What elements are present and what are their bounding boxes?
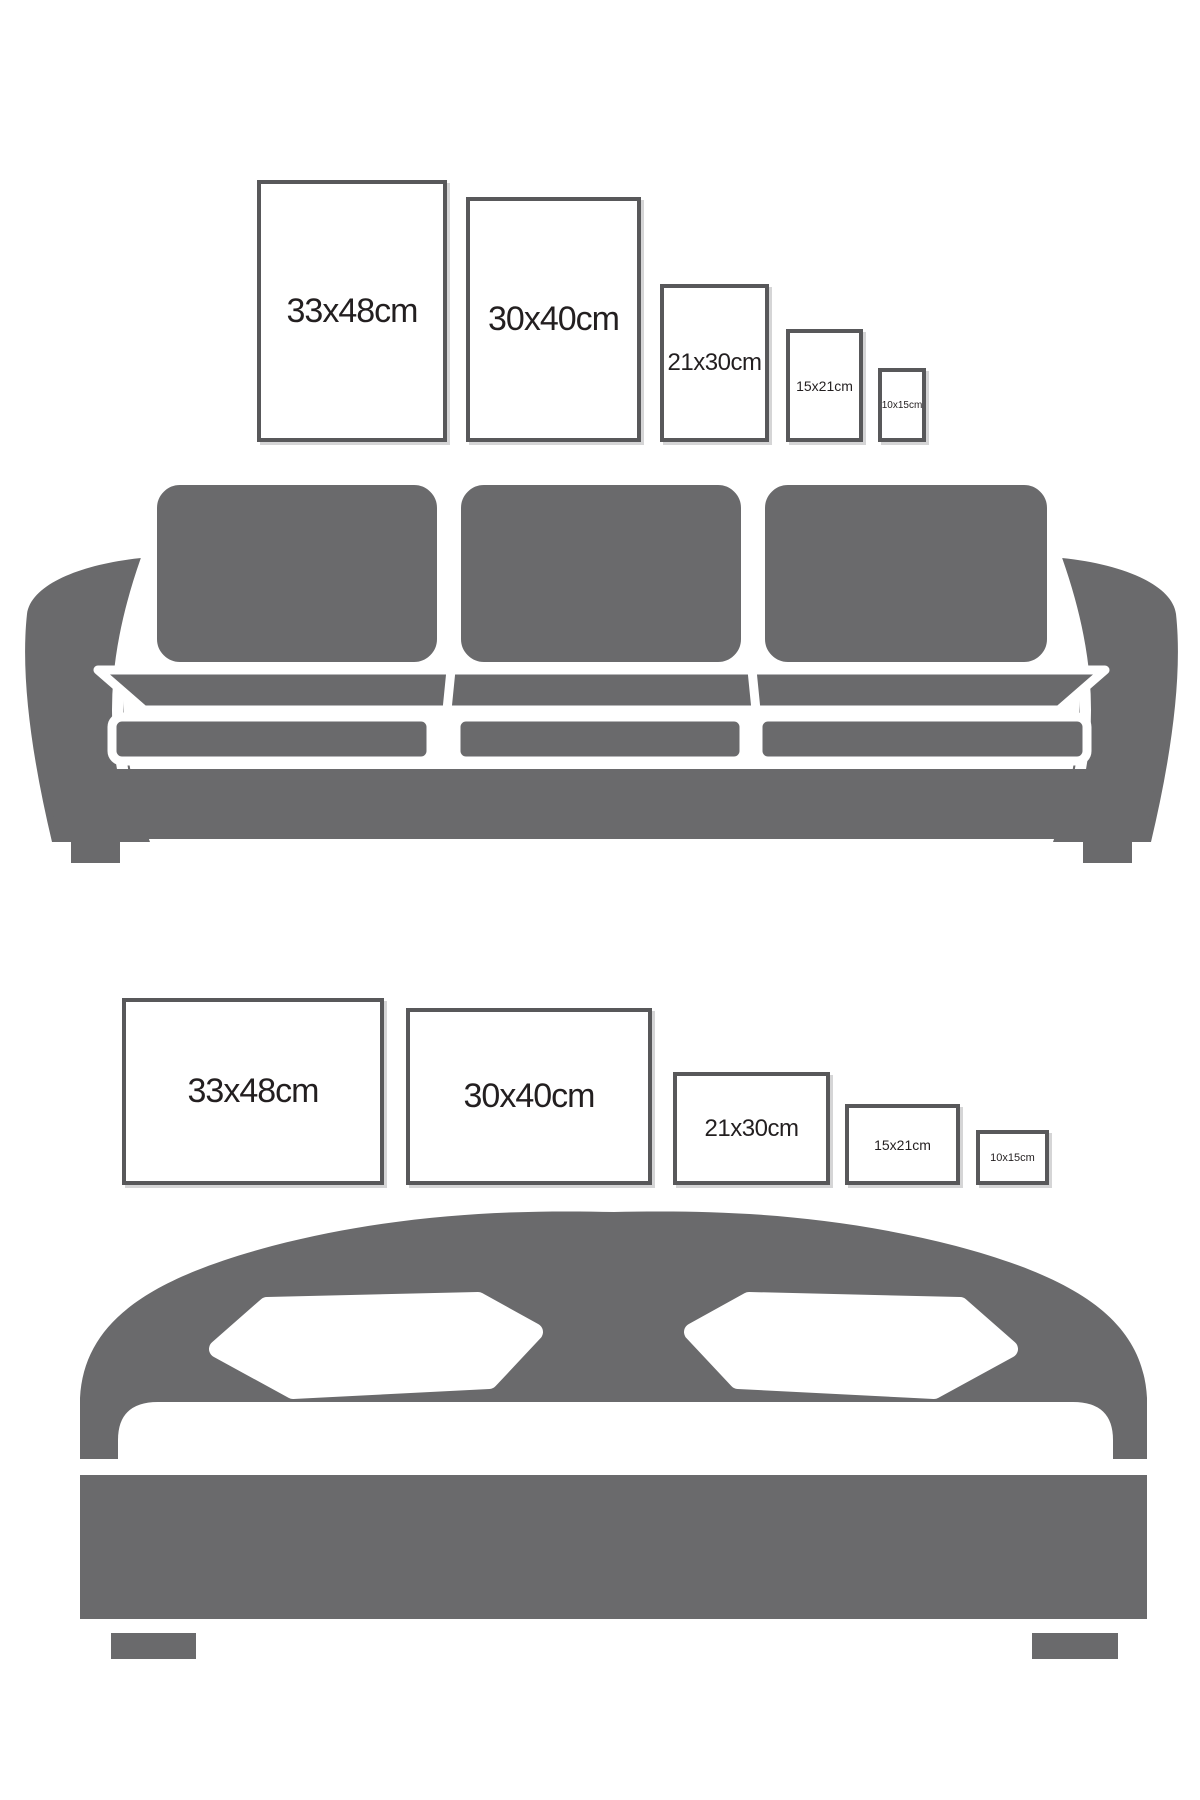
sofa-seat-deck [98,670,1105,710]
size-label: 21x30cm [668,349,762,377]
size-frame-10x15-portrait: 10x15cm [878,368,926,442]
size-frame-15x21-landscape: 15x21cm [845,1104,960,1185]
size-label: 30x40cm [488,300,619,339]
size-frame-21x30-landscape: 21x30cm [673,1072,830,1185]
size-frame-33x48-landscape: 33x48cm [122,998,384,1185]
sofa-back-cushion [760,480,1052,667]
sofa-base [46,769,1157,839]
bed-foot-left [111,1633,196,1659]
size-label: 10x15cm [882,400,923,411]
bed-pillow-right [693,1301,1009,1390]
size-frame-30x40-portrait: 30x40cm [466,197,641,442]
size-frame-33x48-portrait: 33x48cm [257,180,447,442]
sofa-seat-cushion [758,717,1087,761]
size-label: 33x48cm [188,1072,319,1111]
sofa-icon [25,480,1178,863]
sofa-back-cushion [152,480,442,667]
bed-foot-right [1032,1633,1118,1659]
size-label: 33x48cm [287,292,418,331]
bed-pillow-left [218,1301,534,1390]
size-label: 30x40cm [464,1077,595,1116]
bed-mattress [118,1402,1113,1459]
bed-base [80,1475,1147,1619]
size-label: 10x15cm [990,1152,1035,1164]
sofa-deck-divider-right [752,670,756,710]
bed-icon [80,1211,1147,1659]
size-frame-10x15-landscape: 10x15cm [976,1130,1049,1185]
size-label: 15x21cm [796,378,853,394]
size-frame-15x21-portrait: 15x21cm [786,329,863,442]
poster-size-guide: 33x48cm 30x40cm 21x30cm 15x21cm 10x15cm … [0,0,1200,1800]
sofa-seat-cushion [456,717,744,761]
size-label: 21x30cm [705,1115,799,1143]
sofa-foot-right [1083,839,1132,863]
sofa-deck-divider-left [447,670,451,710]
size-frame-30x40-landscape: 30x40cm [406,1008,652,1185]
sofa-seat-cushion [112,717,431,761]
size-label: 15x21cm [874,1137,931,1153]
sofa-foot-left [71,839,120,863]
size-frame-21x30-portrait: 21x30cm [660,284,769,442]
sofa-back-cushion [456,480,746,667]
